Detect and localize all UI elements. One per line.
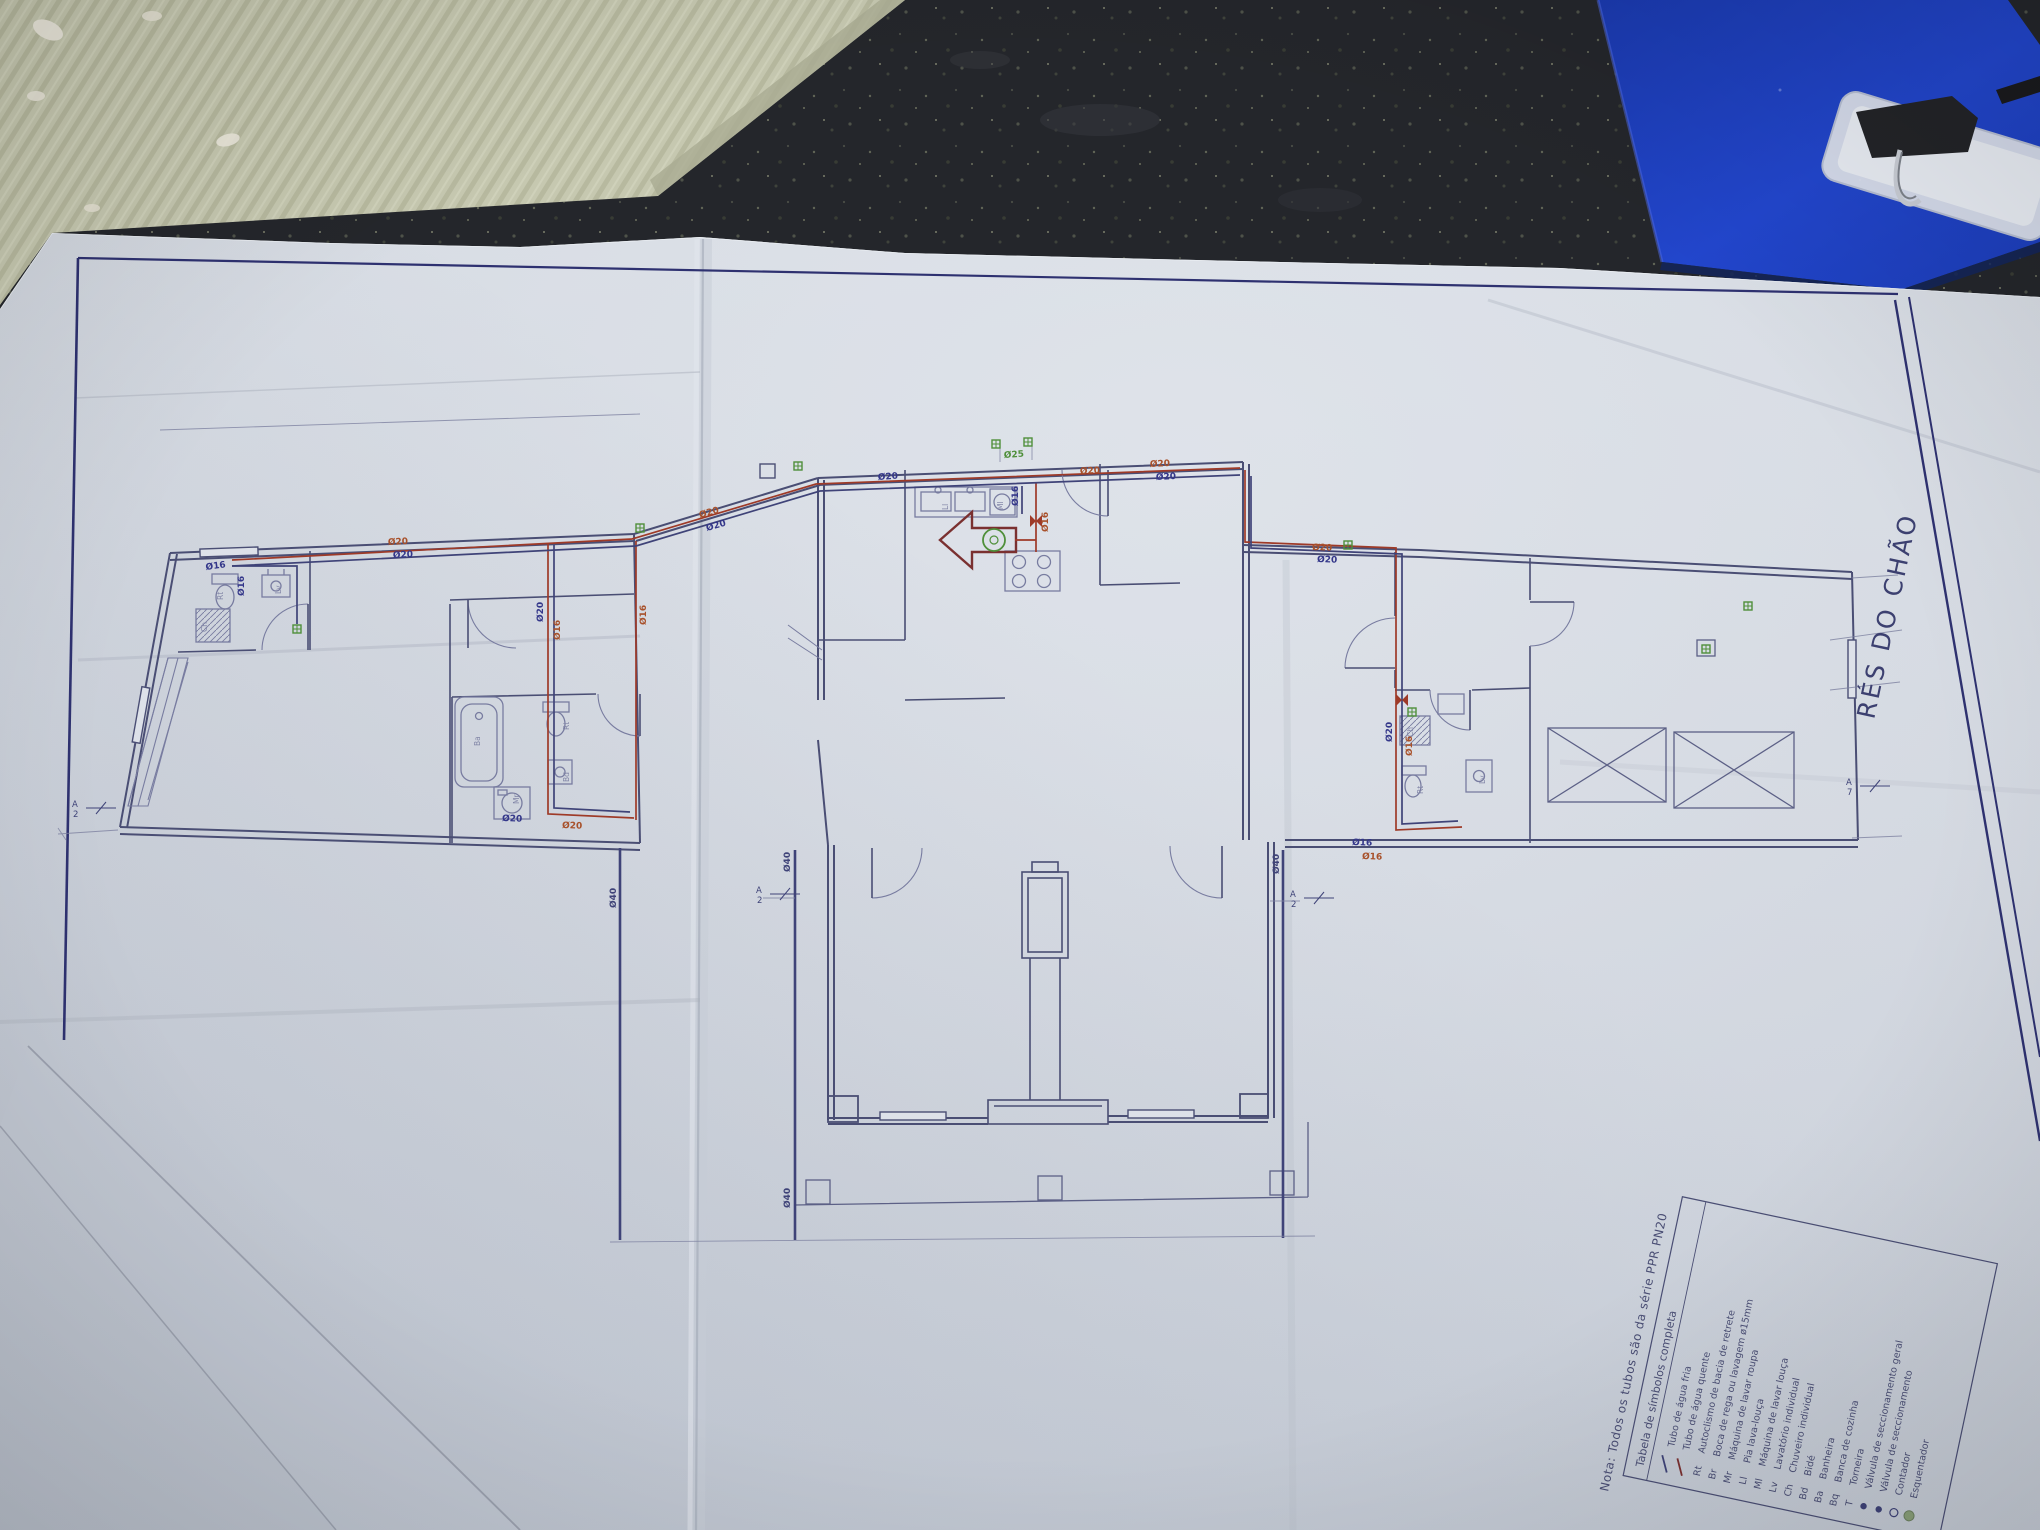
photo-vignette: [0, 0, 2040, 1530]
photo-of-blueprint: Ø16Ø20Ø20Ø20Ø16Ø16Ø20Ø20Ø20Ø20Ø16Ø16Ø25Ø…: [0, 0, 2040, 1530]
scene-canvas: Ø16Ø20Ø20Ø20Ø16Ø16Ø20Ø20Ø20Ø20Ø16Ø16Ø25Ø…: [0, 0, 2040, 1530]
